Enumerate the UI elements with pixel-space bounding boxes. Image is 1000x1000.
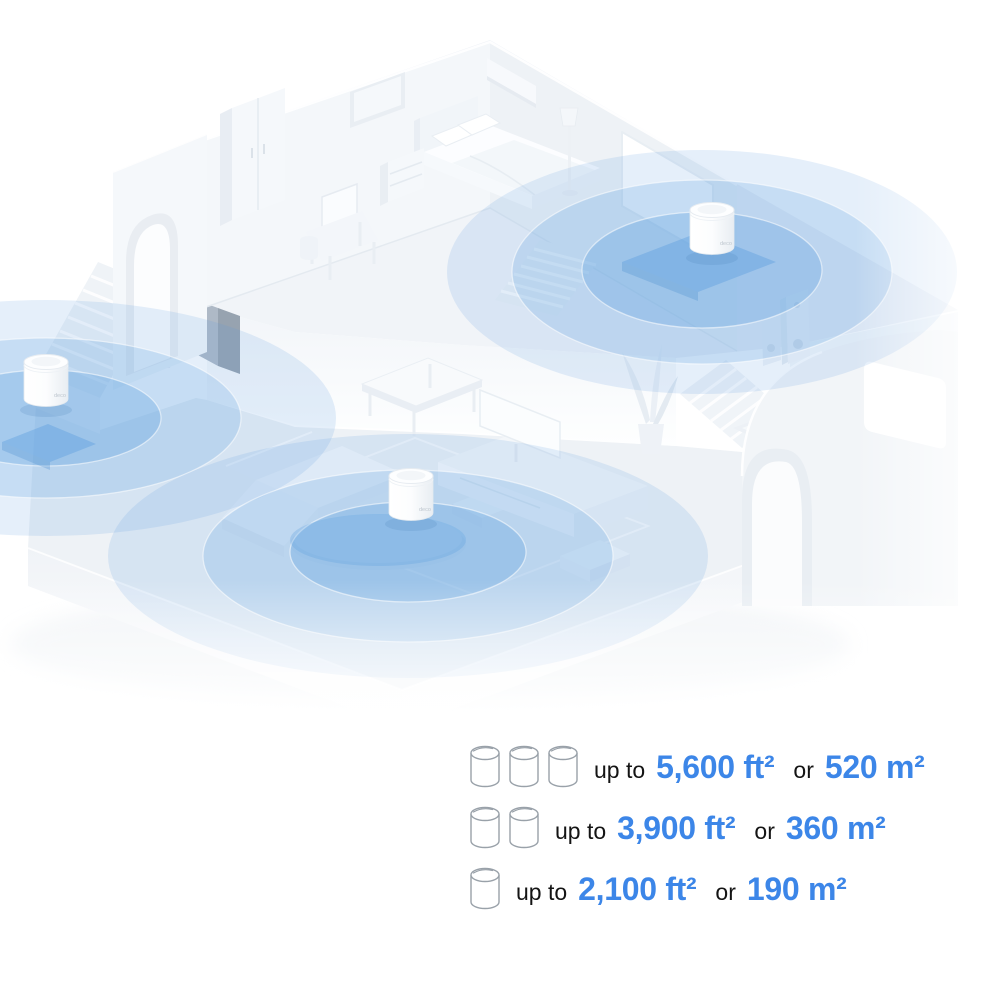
page: deco deco deco bbox=[0, 0, 1000, 1000]
router-logo: deco bbox=[419, 507, 431, 513]
legend-row-3-units: up to 5,600 ft² or 520 m² bbox=[469, 744, 924, 790]
coverage-text: up to 3,900 ft² or 360 m² bbox=[555, 810, 885, 847]
unit-icons bbox=[469, 805, 540, 851]
metric-area-value: 190 m² bbox=[747, 871, 847, 908]
unit-icons bbox=[469, 866, 501, 912]
router-logo: deco bbox=[54, 393, 66, 399]
imperial-area-value: 3,900 ft² bbox=[617, 810, 735, 847]
imperial-area-value: 5,600 ft² bbox=[656, 749, 774, 786]
imperial-area-value: 2,100 ft² bbox=[578, 871, 696, 908]
coverage-legend: up to 5,600 ft² or 520 m² u bbox=[469, 744, 924, 927]
coverage-text: up to 5,600 ft² or 520 m² bbox=[594, 749, 924, 786]
mesh-router-cylinder-icon bbox=[508, 805, 540, 851]
metric-area-value: 360 m² bbox=[786, 810, 886, 847]
mesh-router-cylinder-icon bbox=[508, 744, 540, 790]
unit-icons bbox=[469, 744, 579, 790]
legend-row-2-units: up to 3,900 ft² or 360 m² bbox=[469, 805, 924, 851]
router-logo: deco bbox=[720, 241, 732, 247]
mesh-router-center: deco bbox=[385, 469, 437, 532]
coverage-text: up to 2,100 ft² or 190 m² bbox=[516, 871, 846, 908]
prefix-label: up to bbox=[516, 879, 567, 906]
conjunction-label: or bbox=[793, 757, 813, 784]
bottom-fade bbox=[0, 580, 1000, 720]
prefix-label: up to bbox=[594, 757, 645, 784]
mesh-router-cylinder-icon bbox=[547, 744, 579, 790]
mesh-router-cylinder-icon bbox=[469, 744, 501, 790]
prefix-label: up to bbox=[555, 818, 606, 845]
mesh-router-top-right: deco bbox=[686, 203, 738, 266]
metric-area-value: 520 m² bbox=[825, 749, 925, 786]
mesh-router-cylinder-icon bbox=[469, 866, 501, 912]
mesh-router-cylinder-icon bbox=[469, 805, 501, 851]
mesh-router-left: deco bbox=[20, 355, 72, 418]
legend-row-1-unit: up to 2,100 ft² or 190 m² bbox=[469, 866, 924, 912]
conjunction-label: or bbox=[754, 818, 774, 845]
wifi-coverage-floorplan-illustration: deco deco deco bbox=[0, 0, 1000, 720]
right-fade bbox=[855, 60, 1000, 660]
conjunction-label: or bbox=[715, 879, 735, 906]
